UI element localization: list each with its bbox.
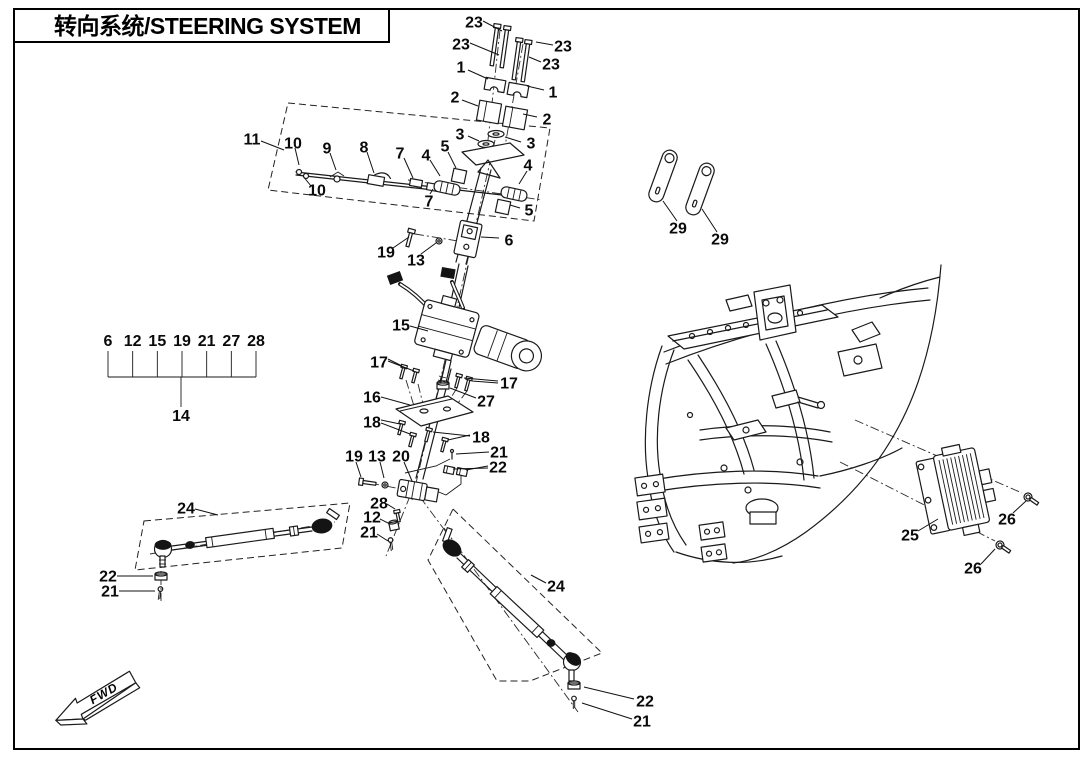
callout-21: 21 [101,584,119,601]
end-cap-5-right [495,199,510,214]
end-cap-5-left [451,168,466,183]
stud-21 [451,450,454,460]
leader-line [388,361,414,371]
legend-number-28: 28 [247,333,265,350]
leader-line [388,359,402,366]
tie-rod-left-group [155,509,340,601]
callout-23: 23 [542,57,560,74]
ecu-group [914,440,1001,543]
fwd-arrow: FWD [49,670,146,734]
callout-23: 23 [465,15,483,32]
callout-1: 1 [549,85,558,102]
ball-joint-right [311,518,333,535]
callout-10: 10 [284,136,302,153]
frame-sketch [635,265,941,563]
legend-layer: 612151921272814 [104,333,265,425]
grip-4-right [500,186,528,202]
bolt-17-b [410,368,419,383]
handlebar-clamp-upper [484,77,506,92]
callout-6: 6 [505,233,514,250]
washer-22-left [155,572,167,580]
callout-15: 15 [392,318,410,335]
washer-13-upper [436,238,442,244]
tie-rod-tube-right [490,587,544,638]
callout-8: 8 [360,140,369,157]
wire-connector-b [441,267,455,278]
leader-line [584,687,634,699]
bolt-26-b [994,539,1012,555]
handlebar-clamp-upper-b [507,82,529,97]
callout-7: 7 [396,146,405,163]
callout-21: 21 [360,525,378,542]
leader-line [456,452,489,454]
steering-spindle-mount [772,390,800,408]
handlebar-mount-plate [462,143,524,165]
washer-13-lower [382,482,388,488]
callout-5: 5 [441,139,450,156]
leader-line [582,703,632,719]
leader-line [527,86,544,90]
callout-19: 19 [345,449,363,466]
legend-number-12: 12 [124,333,142,350]
callout-9: 9 [323,141,332,158]
leader-line [529,57,541,62]
callout-3: 3 [456,127,465,144]
callout-13: 13 [368,449,386,466]
callout-22: 22 [636,694,654,711]
callout-26: 26 [964,561,982,578]
bolt-19-lower [359,478,377,487]
jam-nut-left [289,526,298,536]
leader-line [261,141,284,150]
callout-23: 23 [452,37,470,54]
leader-line [433,432,470,436]
riser-block-b [502,106,527,130]
callout-20: 20 [392,449,410,466]
bushing-12 [388,519,399,530]
bolt-17-c [453,373,462,388]
leader-line [404,158,413,178]
callout-17: 17 [370,355,388,372]
callout-25: 25 [901,528,919,545]
bolt-10 [297,170,302,175]
leader-line [510,205,520,208]
washer [488,131,504,138]
leader-line [430,160,440,176]
legend-number-6: 6 [104,333,113,350]
eps-motor-group [387,267,545,387]
leader-line [381,423,410,434]
bolt-18-d [439,437,448,452]
legend-number-19: 19 [173,333,191,350]
legend-number-21: 21 [198,333,216,350]
mount-plate-group [396,364,473,452]
leader-line [381,397,410,405]
pitman-arm-20 [397,479,439,503]
nut-22-right [568,681,580,689]
bolt-18-c [423,427,432,442]
column-bracket-6 [454,220,483,258]
leader-line [472,381,498,383]
title-block: 转向系统/STEERING SYSTEM [14,9,389,42]
callout-10: 10 [308,183,326,200]
callout-24: 24 [547,579,565,596]
parts-diagram-page: 转向系统/STEERING SYSTEM [0,0,1090,760]
jam-nut-right [462,560,475,573]
callout-18: 18 [472,430,490,447]
callout-11: 11 [244,132,261,149]
callout-16: 16 [363,390,381,407]
strap-29-a [647,148,680,204]
leader-line [387,504,395,509]
callout-21: 21 [633,714,651,731]
leader-line [536,42,553,45]
callout-18: 18 [363,415,381,432]
spacer-7 [409,179,422,188]
eps-motor-cylinder [472,324,545,375]
bolt-18-b [407,432,416,447]
bolt-26-a [1022,491,1040,507]
callout-23: 23 [554,39,572,56]
callout-24: 24 [177,501,195,518]
callout-3: 3 [527,136,536,153]
leader-line [468,136,479,141]
legend-number-15: 15 [148,333,166,350]
leader-line [702,209,717,232]
leader-line [981,549,995,564]
leader-line [531,575,546,583]
nut-22 [443,466,454,475]
mount-plate-16 [396,396,473,426]
callout-4: 4 [422,148,431,165]
bolt-18 [396,420,405,435]
leader-line [468,70,488,79]
callout-4: 4 [524,158,533,175]
riser-block [476,100,501,124]
leader-line [505,137,521,142]
leader-line [462,100,478,106]
callout-2: 2 [543,112,552,129]
legend-number-27: 27 [222,333,240,350]
callout-5: 5 [525,203,534,220]
tie-rod-tube-left [206,528,275,547]
leader-line [195,509,218,515]
leader-line [381,420,400,424]
strap-29-b [684,161,717,217]
callout-19: 19 [377,245,395,262]
page-title: 转向系统/STEERING SYSTEM [54,13,361,39]
leader-line [663,201,677,221]
callout-13: 13 [407,253,425,270]
callout-22: 22 [489,460,507,477]
callout-26: 26 [998,512,1016,529]
leader-line [380,519,390,524]
clamp-stack-group [476,24,532,148]
diagram-canvas: 转向系统/STEERING SYSTEM [0,0,1090,760]
callout-29: 29 [669,221,687,238]
legend-assembly-14: 14 [172,408,190,425]
bolt-19-upper [404,228,415,247]
callout-layer: 2323232311223354457789101011191361517161… [99,15,1026,731]
cotter-pin-21-left [157,586,163,600]
leader-line [377,534,388,541]
leader-line [481,237,499,238]
callout-7: 7 [425,194,434,211]
callout-2: 2 [451,90,460,107]
callout-29: 29 [711,232,729,249]
callout-1: 1 [457,60,466,77]
callout-17: 17 [500,376,518,393]
callout-27: 27 [477,394,495,411]
